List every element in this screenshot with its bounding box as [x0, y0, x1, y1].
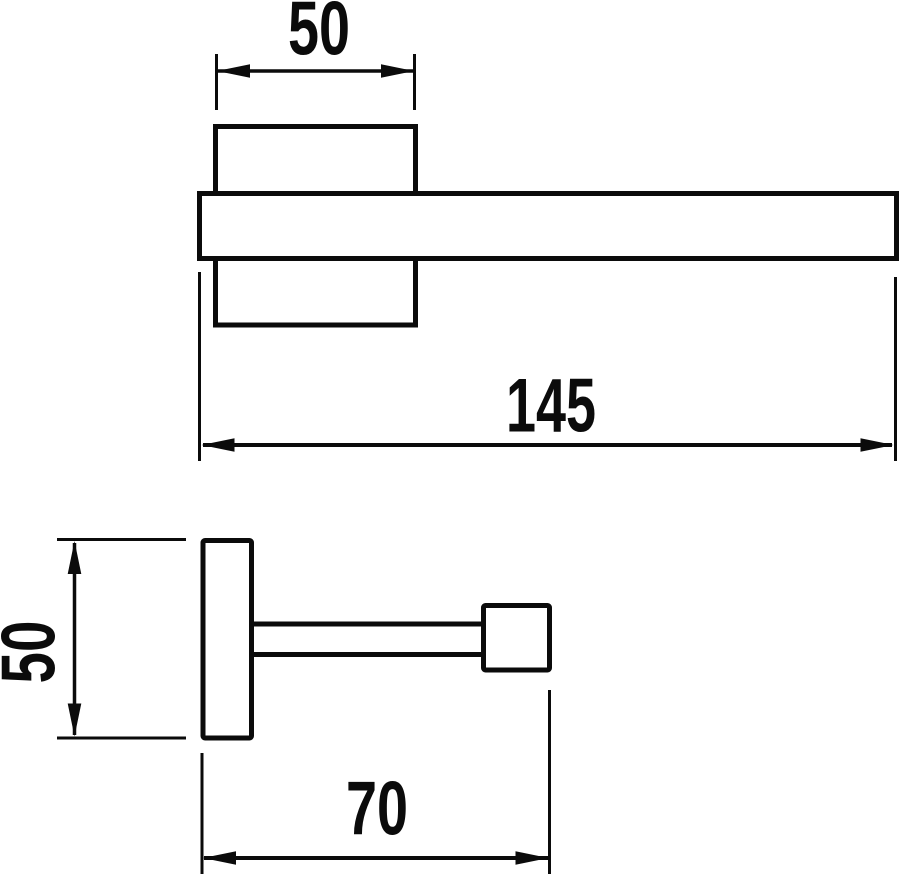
svg-text:70: 70 [346, 767, 408, 852]
svg-text:50: 50 [288, 0, 350, 72]
svg-text:50: 50 [0, 621, 72, 684]
svg-text:145: 145 [506, 364, 596, 449]
